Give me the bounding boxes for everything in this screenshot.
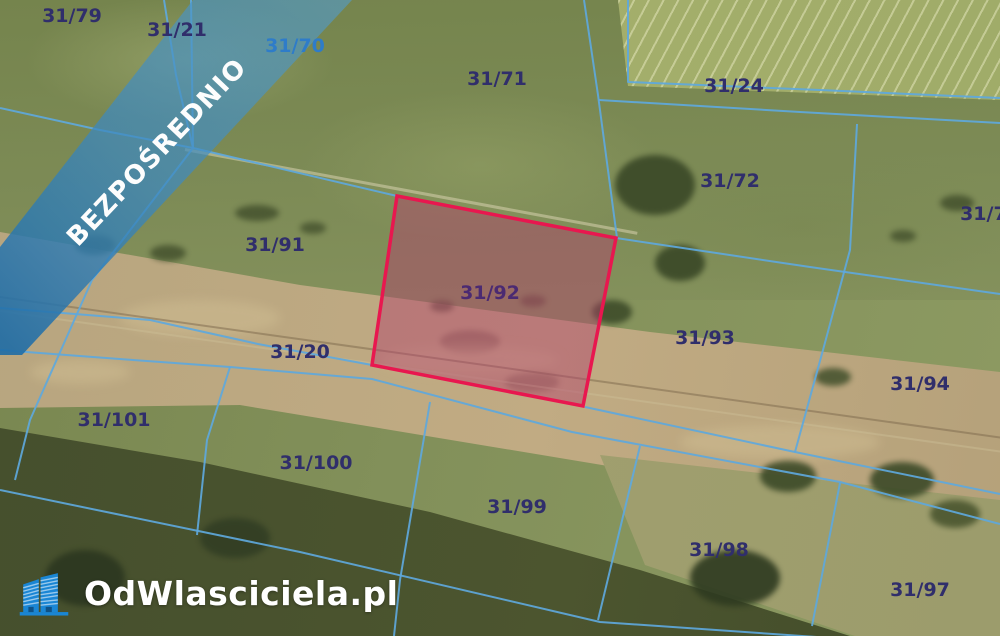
parcel-label-31-79: 31/79 bbox=[42, 5, 102, 27]
buildings-icon bbox=[18, 564, 70, 622]
parcel-label-31-97: 31/97 bbox=[890, 579, 950, 601]
parcel-label-31-98: 31/98 bbox=[689, 539, 749, 561]
parcel-label-31-99: 31/99 bbox=[487, 496, 547, 518]
parcel-label-31-91: 31/91 bbox=[245, 234, 305, 256]
listing-map-image: BEZPOŚREDNIO 31/7931/2131/7031/7131/2431… bbox=[0, 0, 1000, 636]
parcel-label-31-101: 31/101 bbox=[77, 409, 150, 431]
parcel-label-31-94: 31/94 bbox=[890, 373, 950, 395]
parcel-label-31-71: 31/71 bbox=[467, 68, 527, 90]
parcel-label-31-24: 31/24 bbox=[704, 75, 764, 97]
parcel-label-31-100: 31/100 bbox=[279, 452, 352, 474]
parcel-label-31-20: 31/20 bbox=[270, 341, 330, 363]
parcel-label-31-21: 31/21 bbox=[147, 19, 207, 41]
site-logo: OdWlasciciela.pl bbox=[18, 564, 398, 622]
parcel-label-31-70: 31/70 bbox=[265, 35, 325, 57]
parcel-label-31-93: 31/93 bbox=[675, 327, 735, 349]
parcel-label-31-73: 31/73 bbox=[960, 203, 1000, 225]
site-logo-text: OdWlasciciela.pl bbox=[84, 574, 398, 613]
parcel-labels-layer: 31/7931/2131/7031/7131/2431/7231/7331/91… bbox=[0, 0, 1000, 636]
parcel-label-31-92: 31/92 bbox=[460, 282, 520, 304]
parcel-label-31-72: 31/72 bbox=[700, 170, 760, 192]
